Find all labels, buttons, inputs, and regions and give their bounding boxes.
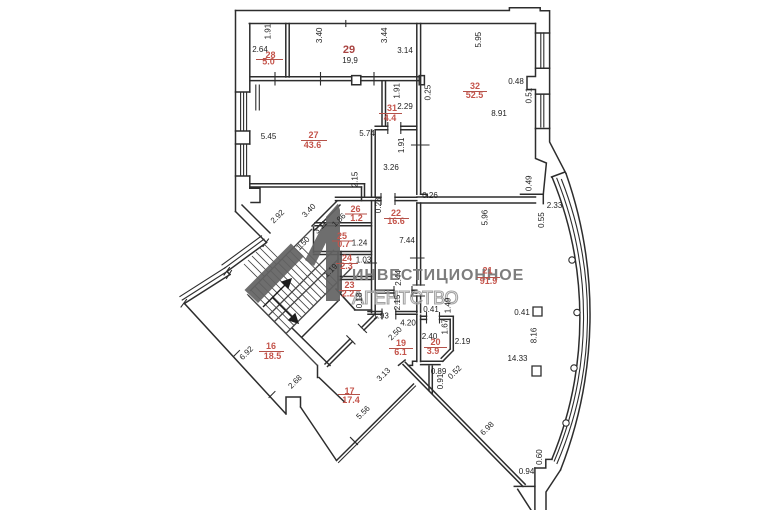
svg-text:0.18: 0.18 (355, 292, 364, 308)
svg-text:1.91: 1.91 (264, 23, 273, 39)
svg-text:29: 29 (343, 44, 355, 56)
svg-text:19,9: 19,9 (342, 56, 358, 65)
svg-text:2.19: 2.19 (455, 337, 471, 346)
svg-text:ИНВЕСТИЦИОННОЕ: ИНВЕСТИЦИОННОЕ (352, 267, 524, 284)
svg-text:0.91: 0.91 (436, 373, 445, 389)
svg-text:2.15: 2.15 (351, 171, 360, 187)
svg-text:4.20: 4.20 (400, 319, 416, 328)
svg-text:14.33: 14.33 (507, 354, 528, 363)
svg-text:0.41: 0.41 (514, 308, 530, 317)
svg-text:8.91: 8.91 (491, 109, 507, 118)
svg-text:7.44: 7.44 (399, 236, 415, 245)
svg-text:5.74: 5.74 (359, 129, 375, 138)
svg-text:1.67: 1.67 (440, 318, 449, 334)
svg-text:16: 16 (266, 341, 276, 351)
svg-text:5.0: 5.0 (262, 57, 275, 67)
svg-text:5.45: 5.45 (261, 132, 277, 141)
svg-text:8.16: 8.16 (530, 327, 539, 343)
svg-text:2.64: 2.64 (252, 45, 268, 54)
svg-text:1.93: 1.93 (373, 312, 389, 321)
svg-text:2.44: 2.44 (394, 270, 403, 286)
svg-text:31: 31 (387, 103, 397, 113)
svg-text:4.4: 4.4 (384, 113, 397, 123)
svg-text:0.94: 0.94 (519, 467, 535, 476)
svg-text:5.95: 5.95 (474, 31, 483, 47)
svg-text:17.4: 17.4 (342, 395, 360, 405)
svg-text:0.48: 0.48 (508, 77, 524, 86)
svg-text:1.91: 1.91 (397, 137, 406, 153)
svg-text:0.28: 0.28 (374, 197, 383, 213)
svg-text:1.24: 1.24 (352, 239, 368, 248)
svg-text:2.3: 2.3 (340, 261, 353, 271)
svg-text:1.91: 1.91 (392, 83, 401, 99)
svg-text:3.14: 3.14 (397, 46, 413, 55)
svg-text:1.03: 1.03 (356, 256, 372, 265)
svg-text:43.6: 43.6 (304, 140, 322, 150)
svg-text:2.15: 2.15 (393, 294, 402, 310)
svg-text:2.29: 2.29 (397, 102, 413, 111)
svg-text:1.49: 1.49 (443, 297, 452, 313)
svg-text:3.44: 3.44 (380, 27, 389, 43)
svg-text:0.51: 0.51 (524, 87, 533, 103)
svg-text:0.60: 0.60 (535, 449, 544, 465)
svg-text:21: 21 (482, 266, 492, 276)
svg-text:5.96: 5.96 (480, 209, 489, 225)
svg-text:2.40: 2.40 (422, 332, 438, 341)
svg-text:0.41: 0.41 (423, 305, 439, 314)
svg-text:0.26: 0.26 (422, 191, 438, 200)
svg-text:0.25: 0.25 (423, 84, 432, 100)
svg-text:27: 27 (308, 130, 318, 140)
svg-text:3.26: 3.26 (383, 163, 399, 172)
svg-text:16.6: 16.6 (387, 216, 405, 226)
svg-text:18.5: 18.5 (264, 351, 282, 361)
svg-text:0.55: 0.55 (537, 212, 546, 228)
svg-text:2.33: 2.33 (547, 201, 563, 210)
svg-text:3.40: 3.40 (315, 27, 324, 43)
svg-text:0.49: 0.49 (524, 175, 533, 191)
